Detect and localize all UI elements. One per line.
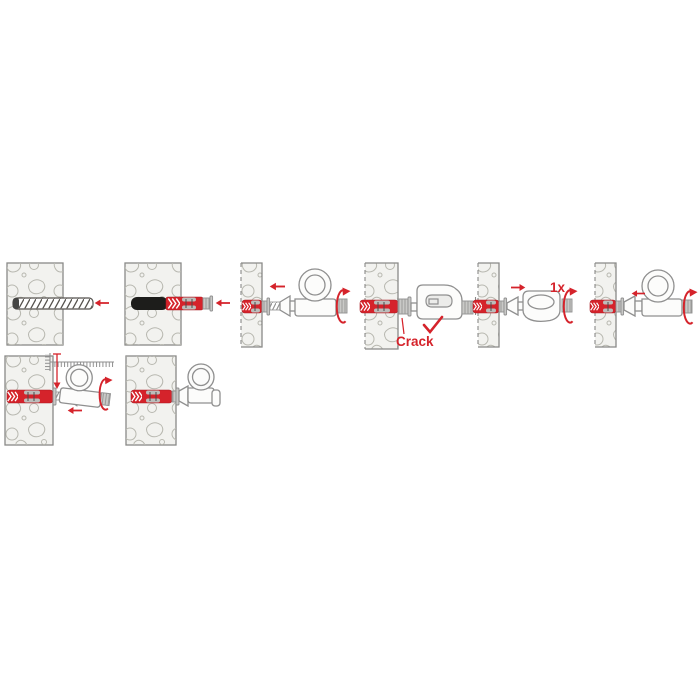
crack-leader-line <box>402 318 404 334</box>
step-3-screw-hook-panel <box>236 255 354 355</box>
step-5-one-turn-panel: 1x <box>470 255 588 355</box>
arrow-left-icon <box>270 283 285 291</box>
step-4-crack-panel: Crack <box>356 255 480 360</box>
anchor-plug-icon <box>360 297 411 316</box>
crack-label: Crack <box>396 334 434 349</box>
step-1-drill-panel <box>0 255 115 355</box>
step-8-finished-panel <box>118 350 230 450</box>
eye-hook-icon <box>411 285 462 319</box>
plug-collar <box>262 298 270 315</box>
threaded-end <box>337 299 347 313</box>
eye-hook-icon <box>179 364 220 406</box>
screw-thread-icon <box>270 302 280 310</box>
installation-instruction-diagram: Crack <box>0 0 700 700</box>
plug-collar <box>616 298 624 315</box>
plug-collar <box>203 296 213 311</box>
anchor-plug-icon <box>590 298 624 315</box>
plug-collar <box>398 297 411 316</box>
one-turn-label: 1x <box>550 280 566 295</box>
hook-end-cap <box>212 390 220 406</box>
drill-bit-icon <box>13 298 93 309</box>
step-2-insert-plug-panel <box>118 255 233 355</box>
step-7-depth-panel <box>0 350 120 450</box>
eye-hook-icon <box>280 269 336 316</box>
anchor-plug-icon <box>7 388 56 405</box>
arrow-right-icon <box>511 284 525 291</box>
eye-hook-icon <box>507 291 560 321</box>
eye-hook-icon <box>59 363 114 410</box>
arrow-left-icon <box>216 299 230 306</box>
anchor-plug-icon <box>242 298 270 315</box>
anchor-plug-icon <box>473 298 507 315</box>
step-6-tighten-panel <box>585 255 700 355</box>
plug-collar <box>499 298 507 315</box>
arrow-left-icon <box>68 407 82 414</box>
plug-collar <box>53 388 56 405</box>
arrow-left-icon <box>95 299 109 306</box>
anchor-plug-icon <box>131 296 213 311</box>
